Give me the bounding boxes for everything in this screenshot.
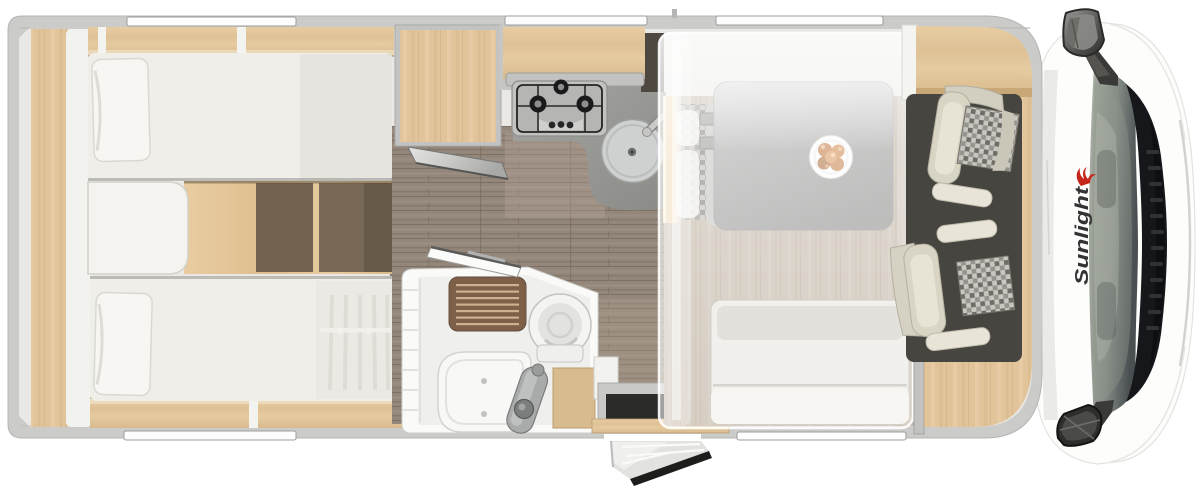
svg-text:Sunlight: Sunlight <box>1072 186 1092 285</box>
